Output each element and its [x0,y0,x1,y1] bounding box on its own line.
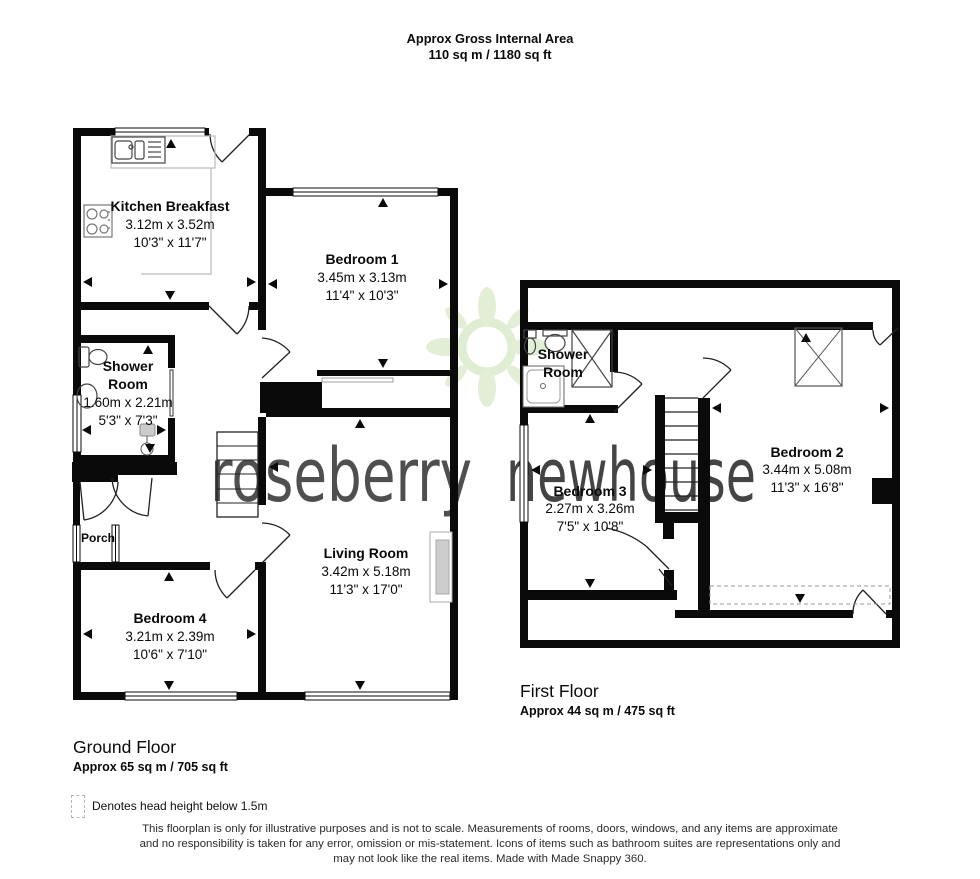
svg-text:Room: Room [543,364,583,380]
svg-text:Kitchen Breakfast: Kitchen Breakfast [110,198,229,214]
svg-text:10'3" x 11'7": 10'3" x 11'7" [133,235,206,250]
svg-text:3.45m x 3.13m: 3.45m x 3.13m [317,270,406,285]
first-floor-area: Approx 44 sq m / 475 sq ft [520,704,675,718]
svg-text:3.44m x 5.08m: 3.44m x 5.08m [762,462,851,477]
disclaimer-line-2: and no responsibility is taken for any e… [0,837,980,852]
room-label-kitchen-breakfast: Kitchen Breakfast 3.12m x 3.52m 10'3" x … [110,198,229,250]
room-label-bedroom-3: Bedroom 3 2.27m x 3.26m 7'5" x 10'8" [545,483,634,534]
svg-text:Shower: Shower [103,358,154,374]
svg-text:11'3" x 16'8": 11'3" x 16'8" [770,480,843,495]
svg-text:11'4" x 10'3": 11'4" x 10'3" [325,288,398,303]
svg-text:7'5" x 10'8": 7'5" x 10'8" [557,519,624,534]
shower-head-icon [140,424,155,455]
svg-text:3.42m x 5.18m: 3.42m x 5.18m [321,564,410,579]
first-floor-windows [520,425,528,522]
ground-floor-title: Ground Floor [73,737,176,758]
hob-icon [84,205,112,237]
svg-text:11'3" x 17'0": 11'3" x 17'0" [329,582,402,597]
disclaimer-line-1: This floorplan is only for illustrative … [0,822,980,837]
svg-text:Bedroom 1: Bedroom 1 [325,251,398,267]
head-height-legend-icon [71,795,85,818]
svg-text:Room: Room [108,376,148,392]
disclaimer-line-3: may not look like the real items. Made w… [0,852,980,867]
svg-text:Living Room: Living Room [324,545,409,561]
svg-text:10'6" x 7'10": 10'6" x 7'10" [133,647,207,662]
svg-text:1.60m x 2.21m: 1.60m x 2.21m [83,395,172,410]
svg-text:5'3" x 7'3": 5'3" x 7'3" [98,413,157,428]
room-label-shower-room-first: Shower Room [538,346,589,380]
svg-text:Bedroom 3: Bedroom 3 [553,483,626,499]
svg-text:3.21m x 2.39m: 3.21m x 2.39m [125,629,214,644]
svg-text:2.27m x 3.26m: 2.27m x 3.26m [545,501,634,516]
svg-text:Bedroom 4: Bedroom 4 [133,610,206,626]
skylight-box-icon [795,328,842,386]
head-height-legend-text: Denotes head height below 1.5m [92,799,267,813]
svg-text:Bedroom 2: Bedroom 2 [770,444,843,460]
chimney-breast [872,478,900,504]
svg-text:3.12m x 3.52m: 3.12m x 3.52m [125,217,214,232]
first-floor-title: First Floor [520,681,599,702]
ground-floor-area: Approx 65 sq m / 705 sq ft [73,760,228,774]
fireplace-icon [430,532,452,602]
room-label-bedroom-4: Bedroom 4 3.21m x 2.39m 10'6" x 7'10" [125,610,214,662]
kitchen-sink-icon [112,137,165,163]
room-label-bedroom-1: Bedroom 1 3.45m x 3.13m 11'4" x 10'3" [317,251,406,303]
svg-text:Shower: Shower [538,346,589,362]
room-label-bedroom-2: Bedroom 2 3.44m x 5.08m 11'3" x 16'8" [762,444,851,495]
room-label-living-room: Living Room 3.42m x 5.18m 11'3" x 17'0" [321,545,410,597]
ground-floor-plan: Kitchen Breakfast 3.12m x 3.52m 10'3" x … [72,128,458,700]
room-label-porch: Porch [81,531,115,545]
